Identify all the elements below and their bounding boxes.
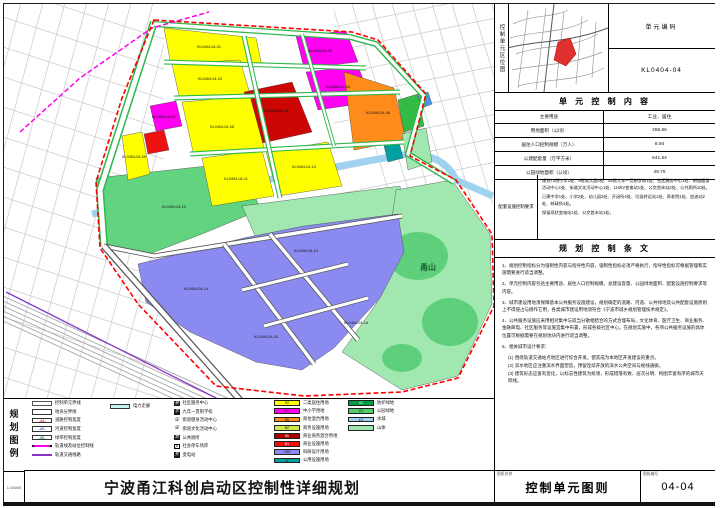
parcel-label: KL0404-04-16 [344, 321, 368, 325]
row-value: 455.66 [604, 124, 715, 137]
legend-landuse-item: C65科研设计用地 [274, 448, 368, 456]
legend-label: 河道控制宽度 [55, 426, 81, 432]
legend-plot-symbol [32, 409, 52, 415]
legend-label: 二类居住用地 [303, 400, 329, 406]
legend-label: 商务设施用地 [303, 425, 329, 431]
parcel-label: KL0404-04-11 [224, 177, 248, 181]
row-label: 公建配套量（万平方米） [495, 152, 604, 165]
legend-facility-item: P社会停车场库 [174, 442, 270, 451]
unit-code-value: KL0404-04 [608, 48, 715, 92]
row-label: 主要用途 [495, 110, 604, 123]
facility-paragraph: 规划72班小学1处、9班幼儿园3处、54班九年一贯制学校1处、社区服务中心1处、… [542, 178, 711, 191]
facility-icon: 服 [174, 401, 180, 407]
sheet-info-row: 图纸名称 控制单元图则 图纸编号 04-04 [495, 470, 715, 503]
facility-icon: ② [174, 426, 180, 432]
right-panel: 控制单元区位图 单元编码 [494, 4, 715, 502]
landuse-swatch: A33 [274, 408, 300, 414]
plan-map-panel: KL0404-04-01KL0404-04-02KL0404-04-03KL04… [4, 4, 494, 398]
landuse-swatch [348, 425, 374, 431]
landuse-swatch: Rb [274, 417, 300, 423]
parcel-label: KL0404-04-15 [254, 335, 278, 339]
legend-label: 商业商务混合用地 [303, 433, 337, 439]
legend-facility-item: 变变电站 [174, 451, 270, 460]
legend-label: 变电站 [183, 452, 196, 458]
facility-row-text: 规划72班小学1处、9班幼儿园3处、54班九年一贯制学校1处、社区服务中心1处、… [538, 175, 715, 239]
row-value: 541.54 [604, 152, 715, 165]
legend-label: 商业设施用地 [303, 441, 329, 447]
legend-label: 防护绿地 [377, 400, 394, 406]
plan-sheet: KL0404-04-01KL0404-04-02KL0404-04-03KL04… [0, 0, 720, 508]
legend-label: 社会停车场库 [183, 443, 209, 449]
legend-label: 公园绿地 [377, 408, 394, 414]
landuse-swatch: G1 [348, 408, 374, 414]
unit-highlight [554, 38, 576, 66]
legend-label: 道路控制宽度 [55, 417, 81, 423]
sheet-name-cell: 图纸名称 控制单元图则 [495, 471, 641, 503]
legend-item-railline: 轨道交通线路 [32, 451, 132, 460]
provision-line: 2、单元控制内容包括主要用途、居住人口控制规模、总建设容量、公园绿地面积、配套设… [502, 280, 708, 294]
legend-item-num: –30–绿带控制宽度 [32, 433, 132, 442]
legend-label: 轨道线及站位控制线 [55, 443, 94, 449]
legend-label: 电力走廊 [133, 403, 150, 409]
legend-item-power: 电力走廊 [110, 402, 150, 411]
legend-label: 商住混合用地 [303, 416, 329, 422]
row-value: 8.94 [604, 138, 715, 151]
landuse-swatch: B2 [274, 425, 300, 431]
parcel-label: KL0404-04-06 [366, 111, 390, 115]
legend-landuse-item: G1公园绿地 [348, 407, 438, 415]
parcel-label: KL0404-04-08 [210, 125, 234, 129]
parcel-label: KL0404-04-09 [122, 155, 146, 159]
parcel-label: 甬山 [420, 262, 436, 272]
landuse-swatch: R2 [274, 400, 300, 406]
legend-num-symbol: –24– [32, 418, 52, 424]
unit-content-row: 用地面积（公顷）455.66 [495, 124, 715, 138]
parcel-commercial [144, 130, 169, 154]
sheet-frame: KL0404-04-01KL0404-04-02KL0404-04-03KL04… [3, 3, 715, 506]
legend-panel: 控制单元界线地块分界线–24–道路控制宽度–20–河道控制宽度–30–绿带控制宽… [24, 398, 494, 471]
unit-content-row: 居住人口控制规模（万人）8.94 [495, 138, 715, 152]
sheet-number-cell: 图纸编号 04-04 [641, 471, 715, 503]
legend-landuse-item: 山体 [348, 424, 438, 432]
row-label: 居住人口控制规模（万人） [495, 138, 604, 151]
legend-landuse-item: U公用设施用地 [274, 456, 368, 464]
facility-icon: 厕 [174, 435, 180, 441]
legend-num-symbol: –30– [32, 435, 52, 441]
landuse-swatch: Bb [274, 433, 300, 439]
provision-line: 5、相关城市设计要求： [502, 343, 708, 350]
legend-label: 街道健身活动中心 [183, 417, 217, 423]
legend-label: 控制单元界线 [55, 400, 81, 406]
unit-location-box: 控制单元区位图 单元编码 [495, 4, 715, 93]
parcel-label: KL0404-04-03 [198, 77, 222, 81]
legend-label: 轨道交通线路 [55, 452, 81, 458]
legend-facility-item: ②街道文化活动中心 [174, 425, 270, 434]
legend-power-corridor: 电力走廊 [110, 402, 150, 411]
provisions-text: 1、规划控制指标分为强制性内容与指导性内容，强制性指标必须严格执行，指导性指标可… [495, 257, 715, 470]
parcel-label: KL0404-04-14 [184, 287, 208, 291]
mountain-blob [422, 298, 478, 346]
facility-paragraph: 保留现状变电站1处、公交首末站1处。 [542, 210, 711, 217]
legend-label: 科研设计用地 [303, 449, 329, 455]
facility-icon: ① [174, 418, 180, 424]
legend-facility-icons: 服社区服务中心学九年一贯制学校①街道健身活动中心②街道文化活动中心厕公共厕所P社… [174, 399, 270, 459]
location-inset-map [508, 4, 609, 92]
legend-item-num: –24–道路控制宽度 [32, 416, 132, 425]
legend-label: 公共厕所 [183, 435, 200, 441]
legend-label: 公用设施用地 [303, 457, 329, 463]
provision-line: 1、规划控制指标分为强制性内容与指导性内容，强制性指标必须严格执行，指导性指标可… [502, 262, 708, 276]
power-corridor-swatch [110, 404, 130, 410]
row-value: 工业、居住 [604, 110, 715, 123]
mountain-blob [382, 344, 422, 372]
legend-unit-symbol [32, 401, 52, 407]
legend-item-railctrl: 轨道线及站位控制线 [32, 442, 132, 451]
provision-line: 3、城市建设用地须保障基本公共服务设施建设，规划确定的道路、河道、公共绿地及公共… [502, 299, 708, 313]
legend-railline-symbol [32, 454, 52, 456]
legend-landuse-item: B1商业设施用地 [274, 440, 368, 448]
row-label: 用地面积（公顷） [495, 124, 604, 137]
legend-label: 绿带控制宽度 [55, 435, 81, 441]
legend-landuse-item: G2防护绿地 [348, 399, 438, 407]
plan-map: KL0404-04-01KL0404-04-02KL0404-04-03KL04… [4, 4, 494, 398]
map-scale: 1:10000 [4, 471, 24, 502]
provision-line: (3) 建筑形态应富有变化，以标志性建筑为统领，形成错落有致、层次分明、构图丰富… [508, 370, 708, 384]
legend-label: 地块分界线 [55, 409, 76, 415]
provision-line: 4、公共服务设施应采用相对集中与适当分散相结合的方式合理布局，文化体育、医疗卫生… [502, 317, 708, 339]
legend-label: 街道文化活动中心 [183, 426, 217, 432]
parcel-label: KL0404-04-01 [197, 45, 221, 49]
facility-requirements-row: 配套设施控制要求 规划72班小学1处、9班幼儿园3处、54班九年一贯制学校1处、… [495, 175, 715, 240]
facility-paragraph: 已建中学1处、小学2处、幼儿园3处、开闭所4处、垃圾转运站1处、养老院1处、加油… [542, 194, 711, 207]
landuse-swatch: C65 [274, 449, 300, 455]
parcel-label: KL0404-04-13 [294, 249, 318, 253]
legend-landuse-item: Bb商业商务混合用地 [274, 432, 368, 440]
legend-strip-title: 规划图例 [4, 401, 24, 469]
legend-landuse-item: E1水域 [348, 415, 438, 423]
sheet-number: 04-04 [661, 481, 694, 493]
facility-row-label: 配套设施控制要求 [495, 175, 538, 239]
legend-railctrl-symbol [32, 445, 52, 447]
legend-facility-item: ①街道健身活动中心 [174, 416, 270, 425]
sheet-name-tag: 图纸名称 [497, 472, 512, 477]
unit-content-table: 主要用途工业、居住用地面积（公顷）455.66居住人口控制规模（万人）8.94公… [495, 110, 715, 180]
landuse-swatch: B1 [274, 441, 300, 447]
unit-content-row: 主要用途工业、居住 [495, 110, 715, 124]
parcel-label: KL0404-04-02 [308, 49, 332, 53]
provisions-header: 规 划 控 制 条 文 [495, 239, 715, 258]
legend-facility-item: 厕公共厕所 [174, 433, 270, 442]
legend-label: 水域 [377, 416, 386, 422]
inset-map-sketch [508, 4, 608, 92]
location-map-title: 控制单元区位图 [495, 4, 509, 92]
title-bar: 宁波甬江科创启动区控制性详细规划 [24, 470, 494, 503]
legend-label: 中小学用地 [303, 408, 324, 414]
landuse-swatch: E1 [348, 417, 374, 423]
unit-content-header: 单 元 控 制 内 容 [495, 92, 715, 111]
unit-content-row: 公建配套量（万平方米）541.54 [495, 152, 715, 166]
sheet-number-tag: 图纸编号 [643, 472, 658, 477]
facility-icon: 学 [174, 409, 180, 415]
provision-line: (2) 滨水地区应注重滨水界面塑造，预留连续开放的滨水公共空间与视线通廊。 [508, 362, 708, 369]
parcel-label: KL0404-04-10 [292, 165, 316, 169]
legend-facility-item: 服社区服务中心 [174, 399, 270, 408]
provision-line: (1) 围绕轨道交通站点地区进行综合开发，使其成为本地区开发建设的重点。 [508, 354, 708, 361]
legend-label: 九年一贯制学校 [183, 409, 213, 415]
parcel-label: KL0404-04-07 [152, 115, 176, 119]
landuse-swatch: G2 [348, 400, 374, 406]
legend-facility-item: 学九年一贯制学校 [174, 408, 270, 417]
plan-title: 宁波甬江科创启动区控制性详细规划 [104, 477, 360, 498]
landuse-swatch: U [274, 458, 300, 464]
facility-icon: P [174, 444, 180, 450]
parcel-label: KL0404-04-05 [264, 109, 288, 113]
left-strip: 规划图例 1:10000 [4, 398, 25, 503]
legend-item-num: –20–河道控制宽度 [32, 425, 132, 434]
legend-label: 社区服务中心 [183, 400, 209, 406]
facility-icon: 变 [174, 452, 180, 458]
parcel-label: KL0404-04-04 [326, 85, 350, 89]
unit-code-label: 单元编码 [608, 4, 715, 49]
legend-num-symbol: –20– [32, 426, 52, 432]
legend-landuse-col2: G2防护绿地G1公园绿地E1水域山体 [348, 399, 438, 432]
parcel-label: KL0404-04-12 [162, 205, 186, 209]
legend-label: 山体 [377, 425, 386, 431]
sheet-name: 控制单元图则 [525, 479, 609, 496]
